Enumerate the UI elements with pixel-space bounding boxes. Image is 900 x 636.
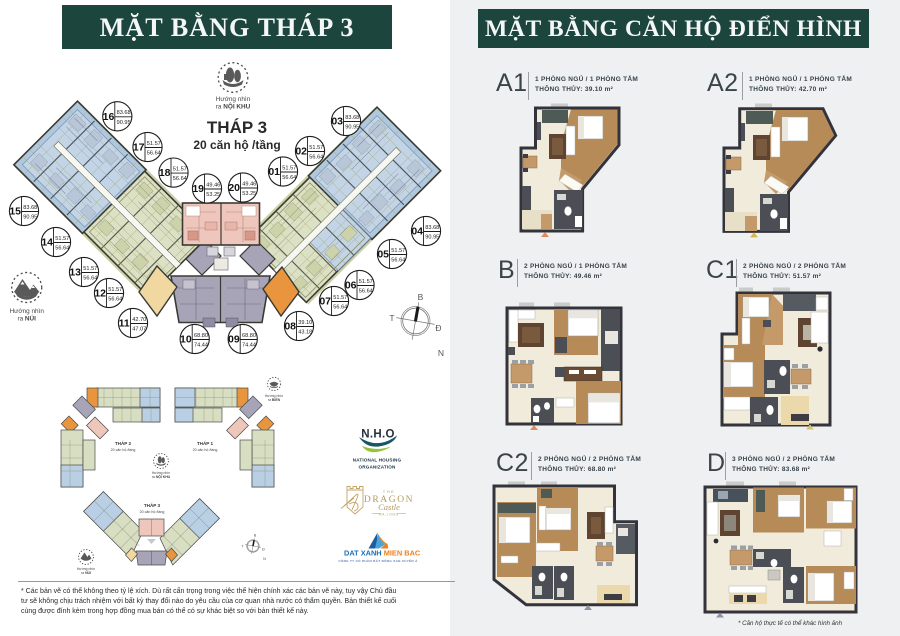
svg-text:90.95: 90.95 — [117, 120, 131, 126]
svg-text:12: 12 — [94, 288, 106, 300]
svg-text:19: 19 — [192, 183, 204, 195]
svg-text:09: 09 — [228, 334, 240, 346]
svg-text:90.95: 90.95 — [345, 125, 359, 131]
svg-text:20 căn hộ /tầng: 20 căn hộ /tầng — [193, 448, 218, 452]
svg-text:B: B — [254, 534, 257, 538]
svg-text:14: 14 — [41, 237, 53, 249]
svg-text:51.57: 51.57 — [282, 165, 296, 171]
svg-text:83.68: 83.68 — [117, 110, 131, 116]
svg-text:56.64: 56.64 — [173, 176, 187, 182]
svg-text:51.57: 51.57 — [359, 279, 373, 285]
svg-text:51.57: 51.57 — [147, 141, 161, 147]
svg-text:Castle: Castle — [378, 502, 400, 512]
svg-text:06: 06 — [345, 280, 357, 292]
svg-text:56.64: 56.64 — [55, 246, 69, 252]
svg-text:51.57: 51.57 — [83, 266, 97, 272]
svg-text:DAT XANH MIEN BAC: DAT XANH MIEN BAC — [344, 549, 421, 558]
svg-text:THE: THE — [383, 489, 396, 494]
svg-text:13: 13 — [69, 267, 81, 279]
svg-text:NATIONAL HOUSING: NATIONAL HOUSING — [353, 458, 402, 463]
svg-text:43.18: 43.18 — [298, 330, 312, 336]
svg-text:07: 07 — [319, 296, 331, 308]
svg-text:03: 03 — [331, 116, 343, 128]
svg-text:56.64: 56.64 — [359, 289, 373, 295]
svg-text:56.64: 56.64 — [147, 151, 161, 157]
svg-text:51.57: 51.57 — [55, 236, 69, 242]
svg-text:11: 11 — [119, 318, 130, 330]
svg-text:51.57: 51.57 — [333, 295, 347, 301]
svg-text:THÁP 3: THÁP 3 — [144, 502, 161, 508]
svg-text:10: 10 — [180, 334, 192, 346]
svg-text:THÁP 3: THÁP 3 — [207, 118, 267, 137]
svg-text:CÔNG TY CỔ PHẦN BẤT ĐỘNG SẢN X: CÔNG TY CỔ PHẦN BẤT ĐỘNG SẢN XUYÊN Á — [338, 558, 418, 563]
svg-text:N: N — [263, 557, 266, 561]
svg-text:49.46: 49.46 — [206, 182, 220, 188]
svg-text:05: 05 — [377, 249, 389, 261]
svg-text:ra NỘI KHU: ra NỘI KHU — [152, 474, 171, 479]
svg-text:16: 16 — [103, 111, 115, 123]
svg-text:ra NỘI KHU: ra NỘI KHU — [216, 102, 251, 111]
svg-text:83.68: 83.68 — [23, 205, 37, 211]
svg-text:08: 08 — [284, 321, 296, 333]
svg-text:THÁP 1: THÁP 1 — [197, 440, 214, 446]
svg-text:HA LONG: HA LONG — [379, 513, 399, 517]
svg-text:47.07: 47.07 — [132, 327, 146, 333]
svg-text:83.68: 83.68 — [345, 115, 359, 121]
svg-text:68.80: 68.80 — [194, 333, 208, 339]
svg-text:68.80: 68.80 — [242, 333, 256, 339]
svg-text:83.68: 83.68 — [425, 225, 439, 231]
svg-text:53.25: 53.25 — [206, 192, 220, 198]
svg-text:15: 15 — [9, 206, 21, 218]
svg-text:20 căn hộ /tầng: 20 căn hộ /tầng — [193, 138, 280, 152]
svg-text:B: B — [418, 292, 424, 302]
svg-text:T: T — [241, 545, 244, 549]
svg-text:01: 01 — [268, 166, 280, 178]
svg-text:56.64: 56.64 — [391, 258, 405, 264]
svg-text:39.10: 39.10 — [298, 320, 312, 326]
svg-text:90.95: 90.95 — [23, 215, 37, 221]
svg-text:N.H.O: N.H.O — [361, 429, 394, 441]
svg-text:56.64: 56.64 — [282, 175, 296, 181]
svg-text:20 căn hộ /tầng: 20 căn hộ /tầng — [140, 510, 165, 514]
svg-text:04: 04 — [411, 226, 423, 238]
svg-text:ra NÚI: ra NÚI — [81, 570, 91, 575]
svg-text:56.64: 56.64 — [309, 155, 323, 161]
svg-text:42.70: 42.70 — [132, 317, 146, 323]
svg-text:51.57: 51.57 — [391, 248, 405, 254]
svg-text:ORGANIZATION: ORGANIZATION — [359, 465, 396, 470]
svg-text:THÁP 2: THÁP 2 — [115, 440, 132, 446]
svg-text:51.57: 51.57 — [309, 145, 323, 151]
svg-text:17: 17 — [133, 142, 145, 154]
svg-text:N: N — [438, 348, 444, 358]
svg-text:ra BIỂN: ra BIỂN — [268, 397, 281, 402]
svg-text:74.44: 74.44 — [194, 343, 208, 349]
svg-text:20: 20 — [228, 182, 240, 194]
svg-text:90.95: 90.95 — [425, 235, 439, 241]
svg-text:56.64: 56.64 — [333, 305, 347, 311]
svg-text:Đ: Đ — [262, 548, 265, 552]
svg-text:49.46: 49.46 — [242, 181, 256, 187]
svg-text:56.64: 56.64 — [108, 297, 122, 303]
svg-text:74.44: 74.44 — [242, 343, 256, 349]
svg-text:ra NÚI: ra NÚI — [17, 314, 36, 323]
svg-text:53.25: 53.25 — [242, 191, 256, 197]
svg-text:Hướng nhìn: Hướng nhìn — [9, 308, 44, 315]
svg-text:51.57: 51.57 — [173, 166, 187, 172]
svg-text:T: T — [389, 313, 394, 323]
svg-text:51.57: 51.57 — [108, 287, 122, 293]
svg-text:18: 18 — [159, 167, 171, 179]
svg-text:Đ: Đ — [435, 323, 441, 333]
svg-text:Hướng nhìn: Hướng nhìn — [216, 96, 251, 103]
svg-text:56.64: 56.64 — [83, 276, 97, 282]
svg-text:20 căn hộ /tầng: 20 căn hộ /tầng — [111, 448, 136, 452]
svg-text:02: 02 — [295, 146, 307, 158]
